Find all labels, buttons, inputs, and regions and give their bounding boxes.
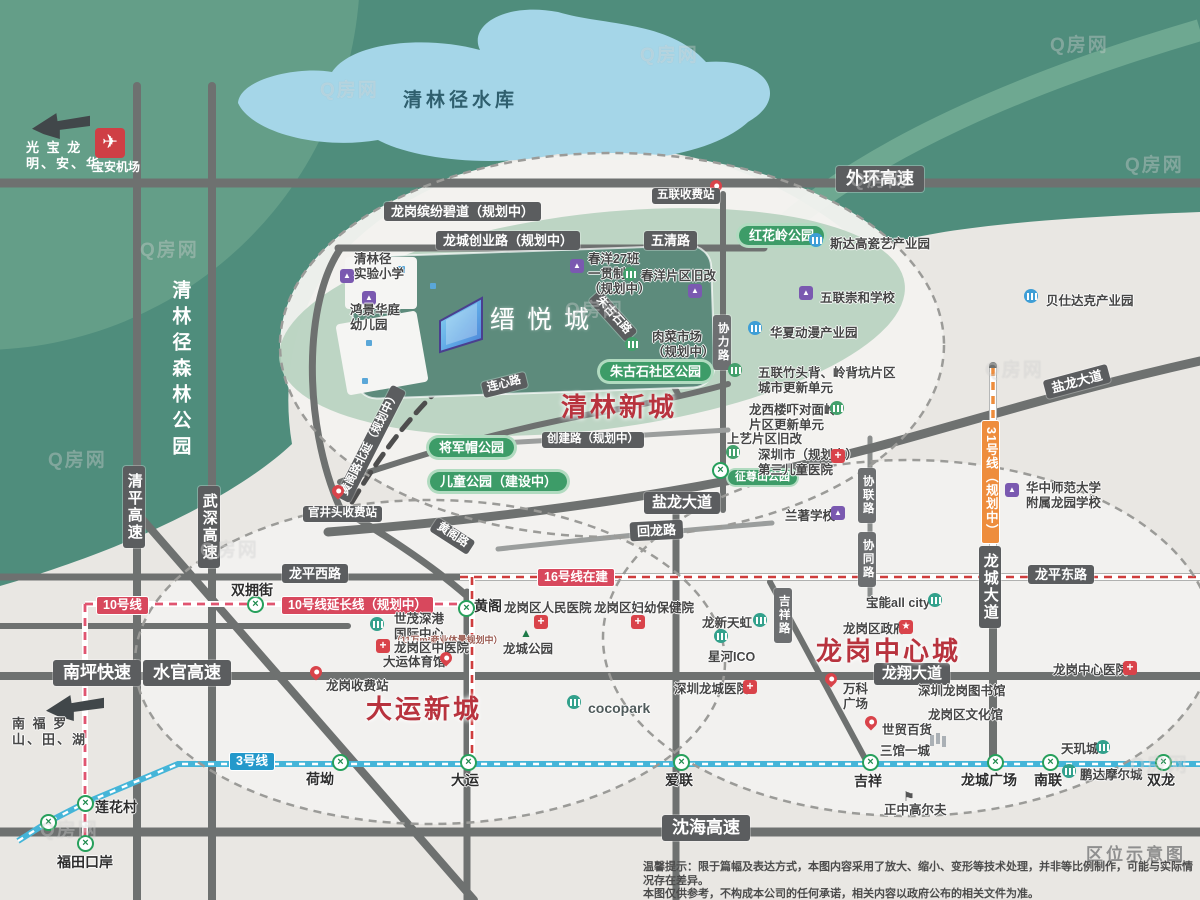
station-label-nanlian: 南联 [1034,772,1062,789]
school-icon-wulian-chonghe: ▲ [799,286,813,300]
station-icon-yanlong-glyph: × [714,464,727,476]
airport-icon: ✈ [95,128,125,158]
industry-icon-huaxia [748,321,762,335]
poi-longcheng-park: 龙城公园 [503,642,553,657]
poi-dayun-gym: 大运体育馆 [383,655,446,670]
mall-icon-shimao [370,617,384,631]
watermark: Q房网 [140,235,199,262]
hospital-icon-zhongyi-glyph: + [376,639,390,652]
station-icon-dayun-glyph: × [462,756,475,768]
hospital-icon-longgang-center: + [1123,661,1137,675]
poi-sida-ceramic-park: 斯达高瓷艺产业园 [830,237,930,252]
station-icon-nanlian-glyph: × [1044,756,1057,768]
district-label-dayun-new-town: 大运新城 [366,694,482,725]
station-icon-ailian: × [673,754,690,771]
poi-huaxia-anime-park: 华夏动漫产业园 [770,326,858,341]
map-labels-layer: 清林径森林公园清林径水库光 宝 龙明、安、华✈宝安机场南 福 罗山、田、湖外环高… [0,0,1200,900]
hospital-icon-renmin-glyph: + [534,615,548,628]
airport-label: 宝安机场 [92,160,140,174]
station-label-longcheng-square: 龙城广场 [961,772,1017,789]
station-icon-huangge-glyph: × [460,602,473,614]
metro-label-line31: 31号线（规划中） [981,420,1000,544]
station-icon-nanlian: × [1042,754,1059,771]
school-icon-lanzhu-glyph: ▲ [831,506,845,519]
station-icon-huangge: × [458,600,475,617]
metro-label-line10: 10号线 [96,596,149,615]
road-label-qingping-expwy: 清平高速 [123,466,145,548]
school-icon-lanzhu: ▲ [831,506,845,520]
hospital-icon-longcheng: + [743,680,757,694]
poi-qinglinjing-primary-school: 清林径实验小学 [354,252,404,282]
mall-icon-pengda [1062,764,1076,778]
industry-icon-sida [809,233,823,247]
renewal-icon-chunyang [623,267,637,281]
school-icon-chunyang: ▲ [570,259,584,273]
school-icon-huazhong: ▲ [1005,483,1019,497]
station-icon-lianhuacun-glyph: × [79,797,92,809]
hospital-icon-zhongyi: + [376,639,390,653]
road-label-longping-west: 龙平西路 [282,564,348,583]
disclaimer-line-2: 本图仅供参考，不构成本公司的任何承诺，相关内容以政府公布的相关文件为准。 [643,888,1200,900]
poi-huazhong-normal-univ-school: 华中师范大学附属龙园学校 [1026,481,1101,511]
nw-direction-label: 光 宝 龙明、安、华 [26,140,101,173]
toll-label-wulian: 五联收费站 [652,188,720,204]
poi-wulian-renewal-unit: 五联竹头背、岭背坑片区城市更新单元 [758,366,896,396]
poi-longgang-culture-center: 龙岗区文化馆 [928,708,1003,723]
watermark: Q房网 [1050,30,1109,57]
road-label-huangge-north-ext: 黄阁路北延（规划中） [335,385,406,503]
metro-label-line3: 3号线 [229,752,275,771]
watermark: Q房网 [200,535,259,562]
renewal-icon-wulian [728,363,742,377]
hospital-icon-renmin: + [534,615,548,629]
watermark: Q房网 [850,165,909,192]
road-label-xieli: 协力路 [713,315,731,370]
station-label-jixiang: 吉祥 [854,773,882,790]
station-label-ailian: 爱联 [665,772,693,789]
poi-tianji-city: 天玑城 [1061,742,1099,757]
disclaimer: 温馨提示：限于篇幅及表达方式，本图内容采用了放大、缩小、变形等技术处理，并非等比… [643,861,1200,900]
road-label-wuqing: 五清路 [644,231,697,250]
station-icon-shuangyongjie-glyph: × [249,598,262,610]
region-label-forest-park: 清林径森林公园 [168,280,190,462]
station-icon-heao-glyph: × [334,756,347,768]
watermark: Q房网 [985,355,1044,382]
tree-icon-longcheng-park: ▲ [519,626,533,640]
road-label-bidao: 龙岗缤纷碧道（规划中） [384,202,541,221]
renewal-icon-shangyi [726,445,740,459]
poi-baoneng-all-city: 宝能all city [866,596,930,611]
sw-direction-label: 南 福 罗山、田、湖 [12,716,87,749]
poi-chunyang-renewal: 春洋片区旧改 [641,269,716,284]
poi-three-halls-one-city: 三馆一城 [880,744,930,759]
hospital-icon-fuyou-glyph: + [631,615,645,628]
pin-icon-longgang-toll [308,664,325,681]
poi-fuyou-hospital: 龙岗区妇幼保健院 [594,601,694,616]
pin-icon-vanke-plaza [823,671,840,688]
station-icon-shuangyongjie: × [247,596,264,613]
hospital-icon-longgang-center-glyph: + [1123,661,1137,674]
gov-icon-longgang: ★ [899,620,913,634]
disclaimer-line-1: 温馨提示：限于篇幅及表达方式，本图内容采用了放大、缩小、变形等技术处理，并非等比… [643,861,1200,888]
school-icon-qinglinjing: ▲ [340,269,354,283]
watermark: Q房网 [565,295,624,322]
road-label-yanlong-east: 盐龙大道 [1043,364,1112,400]
lake-label-reservoir: 清林径水库 [403,90,518,112]
station-icon-ailian-glyph: × [675,756,688,768]
road-label-longcheng-chuangye: 龙城创业路（规划中） [436,231,580,250]
district-label-qinglin-new-town: 清林新城 [561,392,677,423]
school-icon-qinglinjing-glyph: ▲ [340,269,354,282]
station-icon-jixiang-glyph: × [864,756,877,768]
toll-label-guanjingtou: 官井头收费站 [303,506,382,522]
school-icon-huazhong-glyph: ▲ [1005,483,1019,496]
poi-beishida-industry-park: 贝仕达克产业园 [1046,294,1134,309]
renewal-icon-meat-market [625,337,639,351]
golf-icon-zhengzhong: ⚑ [901,789,917,803]
school-icon-chunyang-south: ▲ [688,284,702,298]
poi-longcheng-hospital: 深圳龙城医院 [674,682,749,697]
poi-wulian-chonghe-school: 五联崇和学校 [820,291,895,306]
station-label-shuangyongjie: 双拥街 [231,582,273,599]
pin-icon-shimao-department [863,714,880,731]
mall-icon-xinghe-ico [714,629,728,643]
road-label-chuangjian: 创建路（规划中） [542,432,644,448]
park-label-jiangjunmao: 将军帽公园 [426,435,517,460]
poi-vanke-plaza: 万科广场 [843,682,868,712]
road-label-shuiguan-expwy: 水官高速 [143,660,231,686]
station-label-futiankouan: 福田口岸 [57,854,113,871]
poi-shimao-department-store: 世贸百货 [882,723,932,738]
nw-direction-arrow-icon [32,112,90,139]
station-icon-longcheng-square: × [987,754,1004,771]
poi-zhongyi-hospital: 龙岗区中医院 [394,641,469,656]
road-label-shenhai-expwy: 沈海高速 [662,815,750,841]
hospital-icon-third-children-glyph: + [831,449,845,462]
school-icon-chunyang-glyph: ▲ [570,259,584,272]
airport-icon-glyph: ✈ [95,128,125,157]
road-label-jixiang-road: 吉祥路 [774,588,792,643]
station-label-dayun: 大运 [451,772,479,789]
station-icon-dayun: × [460,754,477,771]
station-icon-heao: × [332,754,349,771]
road-label-longcheng-avenue: 龙城大道 [979,546,1001,628]
gov-icon-longgang-glyph: ★ [899,620,913,634]
poi-longgang-center-hospital: 龙岗中心医院 [1053,663,1128,678]
watermark: Q房网 [40,815,99,842]
mall-icon-tianji [1096,740,1110,754]
renewal-icon-longxi [830,401,844,415]
station-icon-lianhuacun: × [77,795,94,812]
buildings-icon-three-halls [928,733,946,746]
poi-lanzhu-school: 兰著学校 [785,509,835,524]
poi-xinghe-ico: 星河ICO [708,650,755,665]
station-icon-jixiang: × [862,754,879,771]
station-icon-yanlong: × [712,462,729,479]
station-label-lianhuacun: 莲花村 [95,799,137,816]
location-map: 清林径森林公园清林径水库光 宝 龙明、安、华✈宝安机场南 福 罗山、田、湖外环高… [0,0,1200,900]
poi-hongjing-kindergarten: 鸿景华庭幼儿园 [350,303,400,333]
poi-renmin-hospital: 龙岗区人民医院 [504,601,592,616]
school-icon-wulian-chonghe-glyph: ▲ [799,286,813,299]
road-label-huilong: 回龙路 [630,520,684,542]
poi-longgang-library: 深圳龙岗图书馆 [918,684,1006,699]
poi-longxi-renewal-unit: 龙西楼吓对面岭片区更新单元 [749,403,837,433]
watermark: Q房网 [640,40,699,67]
poi-cocopark: cocopark [588,700,650,717]
industry-icon-beishida [1024,289,1038,303]
hospital-icon-fuyou: + [631,615,645,629]
road-label-xietong: 协同路 [858,532,876,587]
poi-longgang-government: 龙岗区政府 [843,622,906,637]
park-label-children-park: 儿童公园（建设中） [427,469,570,494]
mall-icon-baoneng [928,593,942,607]
tree-icon-longcheng-park-glyph: ▲ [519,626,533,640]
poi-shangyi-renewal: 上艺片区旧改 [727,432,802,447]
road-label-longping-east: 龙平东路 [1028,565,1094,584]
school-icon-chunyang-south-glyph: ▲ [688,284,702,297]
metro-label-line16: 16号线在建 [537,568,615,587]
watermark: Q房网 [1125,150,1184,177]
road-label-lianxin: 连心路 [481,372,528,398]
park-label-zhugushi-community: 朱古石社区公园 [597,359,714,384]
road-label-huangge: 黄阁路 [429,517,475,554]
hospital-icon-third-children: + [831,449,845,463]
poi-meat-market: 肉菜市场（规划中） [652,330,715,360]
road-label-nanping-expwy: 南坪快速 [53,660,141,686]
station-icon-longcheng-square-glyph: × [989,756,1002,768]
road-label-xielian: 协联路 [858,468,876,523]
watermark: Q房网 [1130,750,1189,777]
poi-zhengzhong-golf: 正中高尔夫 [884,803,947,818]
road-label-yanlong-west: 盐龙大道 [644,492,720,514]
watermark: Q房网 [320,75,379,102]
mall-icon-longxin-tianhong [753,613,767,627]
station-label-heao: 荷坳 [306,771,334,788]
watermark: Q房网 [48,445,107,472]
district-label-longgang-center: 龙岗中心城 [816,636,961,667]
hospital-icon-longcheng-glyph: + [743,680,757,693]
station-label-huangge: 黄阁 [474,598,502,615]
poi-longxin-tianhong: 龙新天虹 [702,616,752,631]
poi-longgang-toll: 龙岗收费站 [326,679,389,694]
mall-icon-cocopark [567,695,581,709]
